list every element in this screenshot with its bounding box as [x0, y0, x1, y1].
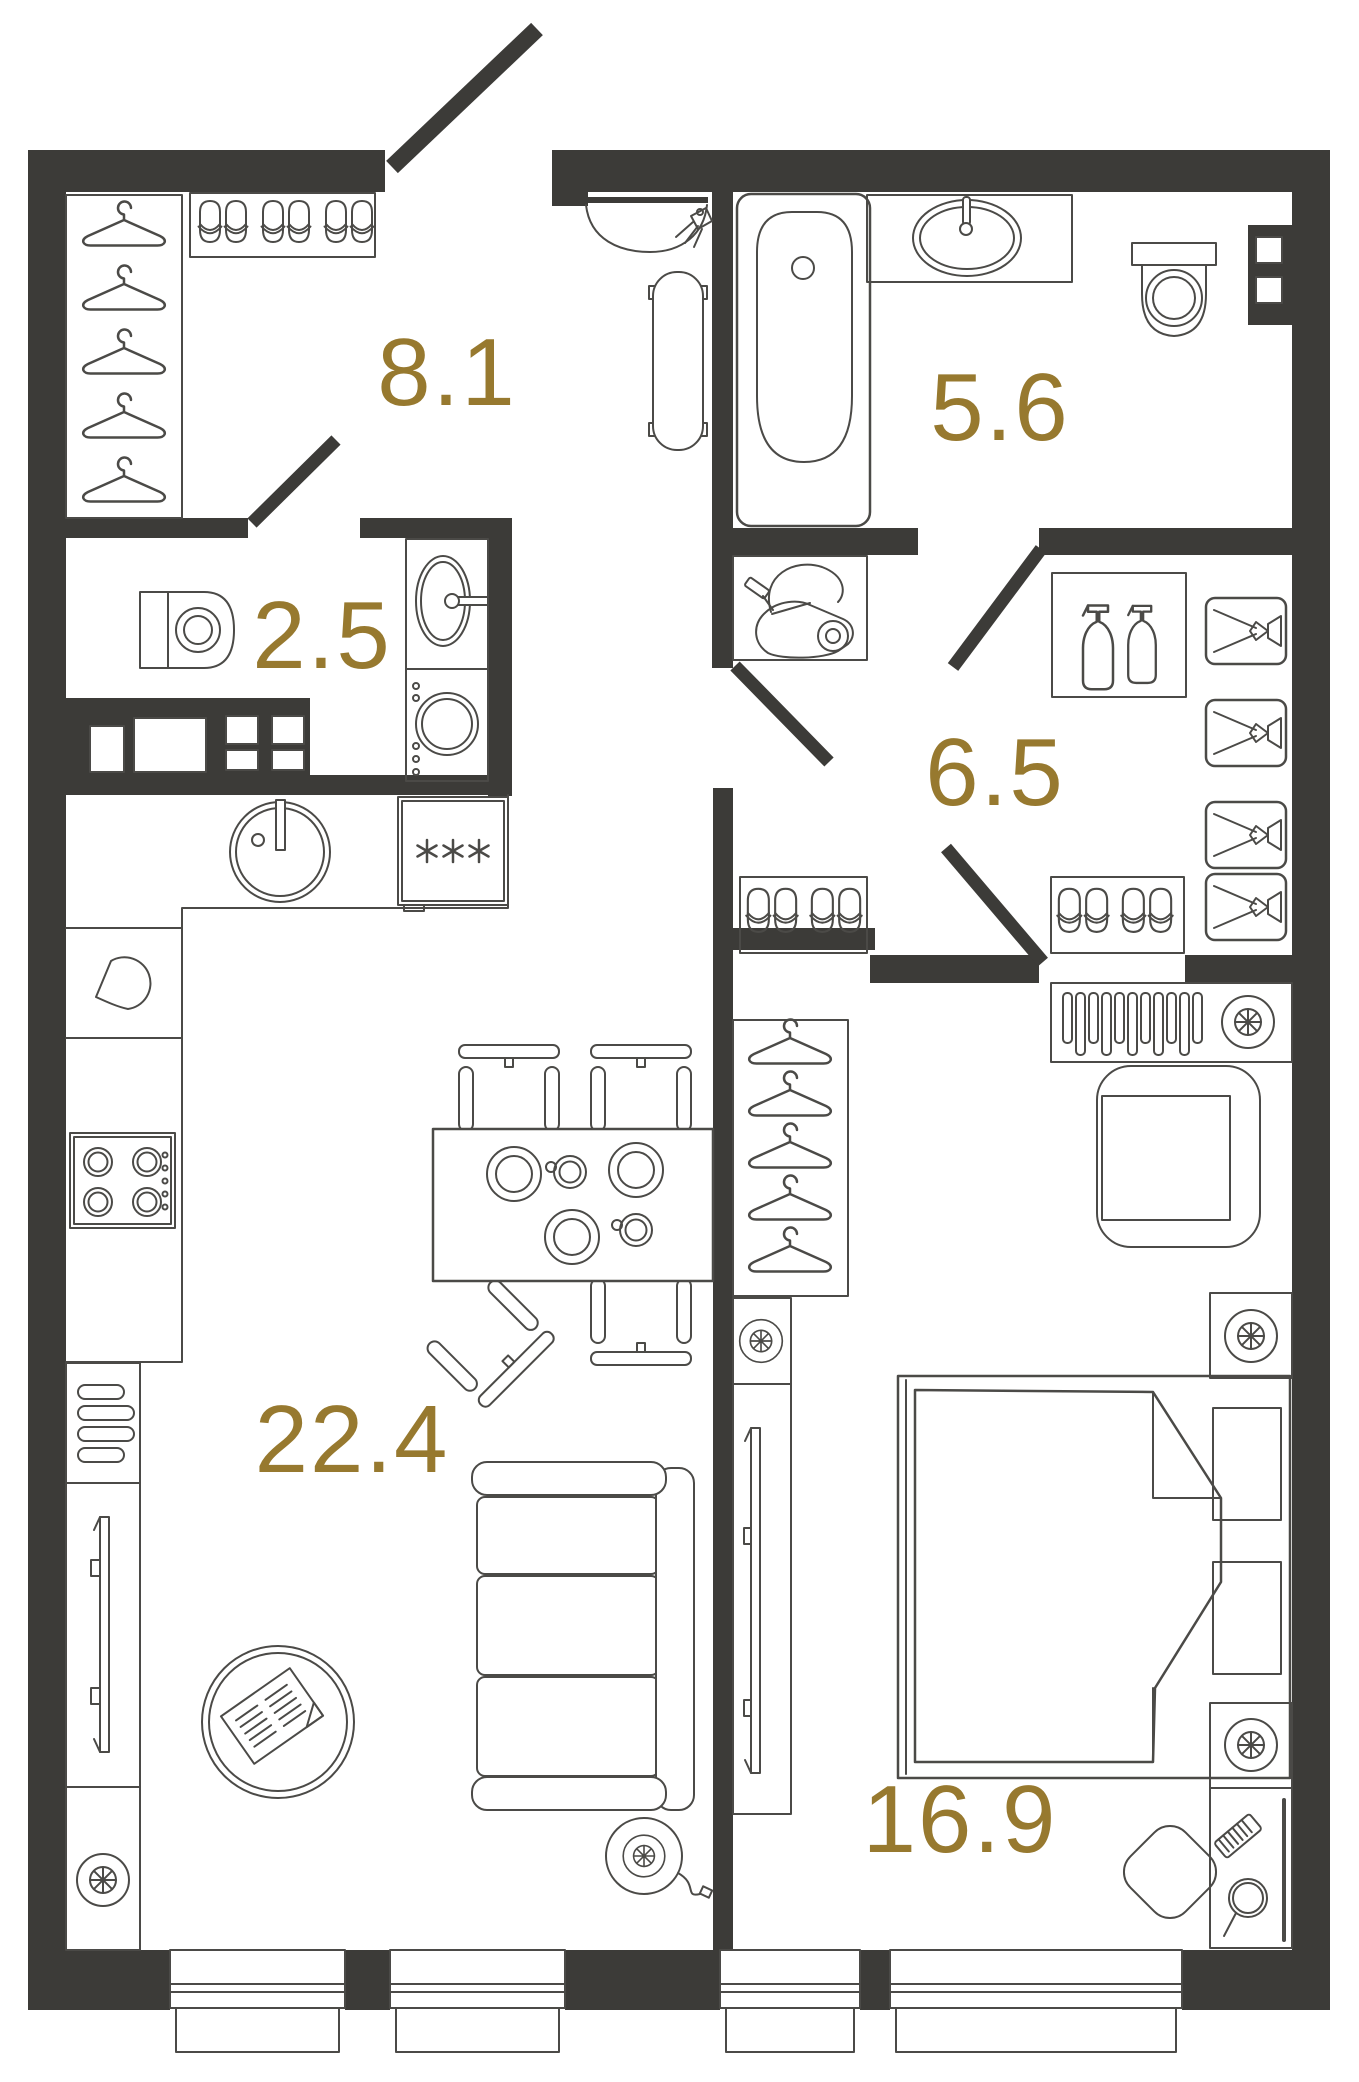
- tv-icon: [733, 1384, 791, 1814]
- storage-drawer-icon: [1206, 598, 1286, 940]
- slippers-icon: [190, 193, 375, 257]
- nightstand-icon: [1213, 1562, 1281, 1674]
- counter-sink-icon: [867, 195, 1072, 282]
- bed-icon: [898, 1376, 1290, 1778]
- washing-machine-icon: [406, 669, 488, 781]
- room-area-bathroom: 5.6: [930, 354, 1069, 461]
- radiator-icon: [1051, 983, 1292, 1062]
- bathtub-icon: [737, 194, 870, 526]
- room-area-wc: 2.5: [252, 582, 391, 689]
- vent-fan-icon: [733, 1298, 791, 1384]
- toilet-icon: [140, 592, 234, 668]
- cooktop-icon: [70, 1133, 175, 1228]
- dressing-table-icon: [1115, 1788, 1292, 1948]
- hand-mirror-icon: [1224, 1879, 1267, 1936]
- room-area-wardrobe: 6.5: [925, 719, 1064, 826]
- interior-door-icon: [252, 440, 336, 523]
- chair-icon: [1115, 1817, 1225, 1927]
- window-icon: [390, 1950, 565, 2052]
- vacuum-cleaner-icon: [733, 556, 867, 660]
- room-living-kitchen: [66, 795, 713, 1950]
- nightstand-icon: [1213, 1408, 1281, 1520]
- armchair-icon: [1097, 1066, 1260, 1247]
- vent-fan-icon: [1210, 1293, 1292, 1788]
- comb-icon: [1214, 1814, 1262, 1859]
- window-icon: [170, 1950, 345, 2052]
- vanity-sink-icon: [406, 539, 488, 669]
- wardrobe-hangers: [733, 1020, 848, 1296]
- magazine-icon: [221, 1668, 323, 1764]
- dining-table-icon: [425, 1045, 713, 1409]
- freezer-icon: [398, 797, 508, 911]
- kitchen-sink-icon: [230, 800, 330, 902]
- window-icon: [890, 1950, 1182, 2052]
- spray-bottles-icon: [1052, 573, 1186, 697]
- floor-plan-page: 8.1 2.5 5.6 6.5 22.4 16.9: [0, 0, 1359, 2082]
- radiator-icon: [66, 1363, 140, 1483]
- kettle-icon: [96, 957, 150, 1009]
- window-icon: [720, 1950, 860, 2052]
- room-area-living-kitchen: 22.4: [255, 1386, 450, 1493]
- toilet-icon: [1132, 243, 1216, 336]
- entry-door-icon: [392, 29, 537, 167]
- sofa-icon: [472, 1462, 694, 1810]
- interior-door-icon: [946, 848, 1043, 962]
- room-area-hallway: 8.1: [377, 319, 516, 426]
- wardrobe-hangers: [66, 195, 182, 518]
- vent-fan-icon: [66, 1787, 140, 1950]
- floor-plan-canvas: 8.1 2.5 5.6 6.5 22.4 16.9: [0, 0, 1359, 2082]
- floor-fan-icon: [606, 1818, 712, 1898]
- corner-sink-icon: [584, 197, 712, 252]
- towel-radiator-icon: [649, 272, 707, 450]
- interior-door-icon: [735, 666, 829, 762]
- coffee-table-icon: [202, 1646, 354, 1798]
- room-area-bedroom: 16.9: [863, 1766, 1058, 1873]
- interior-door-icon: [953, 549, 1041, 667]
- tv-icon: [66, 1483, 140, 1787]
